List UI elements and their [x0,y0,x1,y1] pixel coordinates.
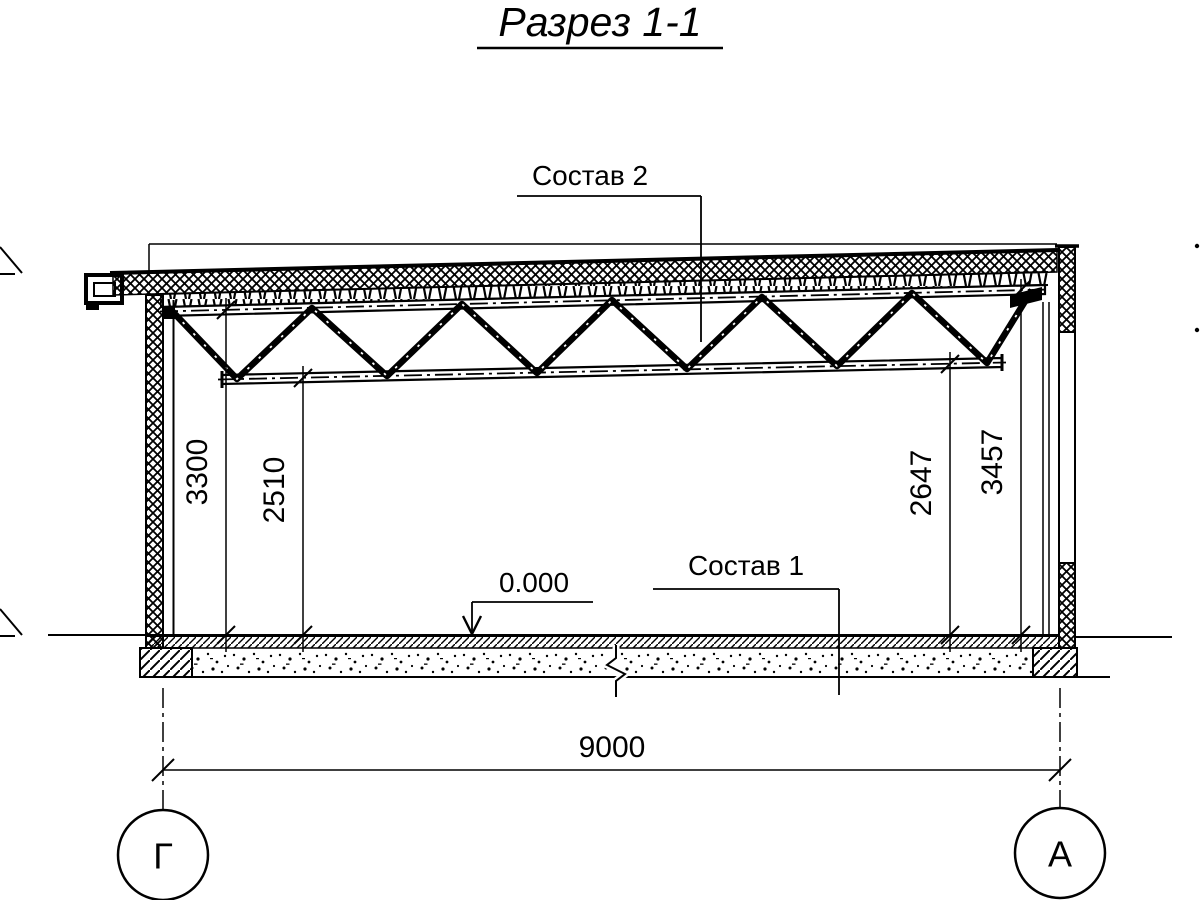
foundation-right [1033,648,1077,677]
dim-left-outer-value: 3300 [181,439,214,506]
truss-bottom-chord [222,358,1002,384]
screed-layer [146,636,1059,648]
dimension-right-inner: 2647 [905,352,959,652]
elevation-mark-zero: 0.000 [463,567,593,634]
drawing-title: Разрез 1-1 [498,0,701,45]
dim-right-outer-value: 3457 [976,429,1009,496]
right-wall-base [1059,563,1075,648]
dim-right-inner-value: 2647 [905,450,938,517]
roof-composition-label: Состав 2 [532,160,648,191]
section-drawing: Разрез 1-1 [0,0,1200,900]
title-block: Разрез 1-1 [477,0,723,48]
axis-left-label: Г [153,836,173,877]
floor-composition-label: Состав 1 [688,550,804,581]
dim-span-value: 9000 [579,731,646,764]
dim-left-inner-value: 2510 [258,457,291,524]
floor-slab [48,635,1172,697]
axis-right: А [1015,688,1105,898]
right-wall [1043,247,1075,648]
foundation-left [140,648,192,677]
right-parapet [1059,247,1075,332]
floor-elevation-label: 0.000 [499,567,569,598]
drawing-sheet: Разрез 1-1 [0,0,1200,900]
axis-left: Г [118,688,208,900]
callout-roof-composition: Состав 2 [517,160,701,342]
dimension-span: 9000 [152,731,1071,781]
left-wall [146,295,174,648]
dimension-left-inner: 2510 [258,366,312,652]
axis-right-label: А [1048,834,1072,875]
